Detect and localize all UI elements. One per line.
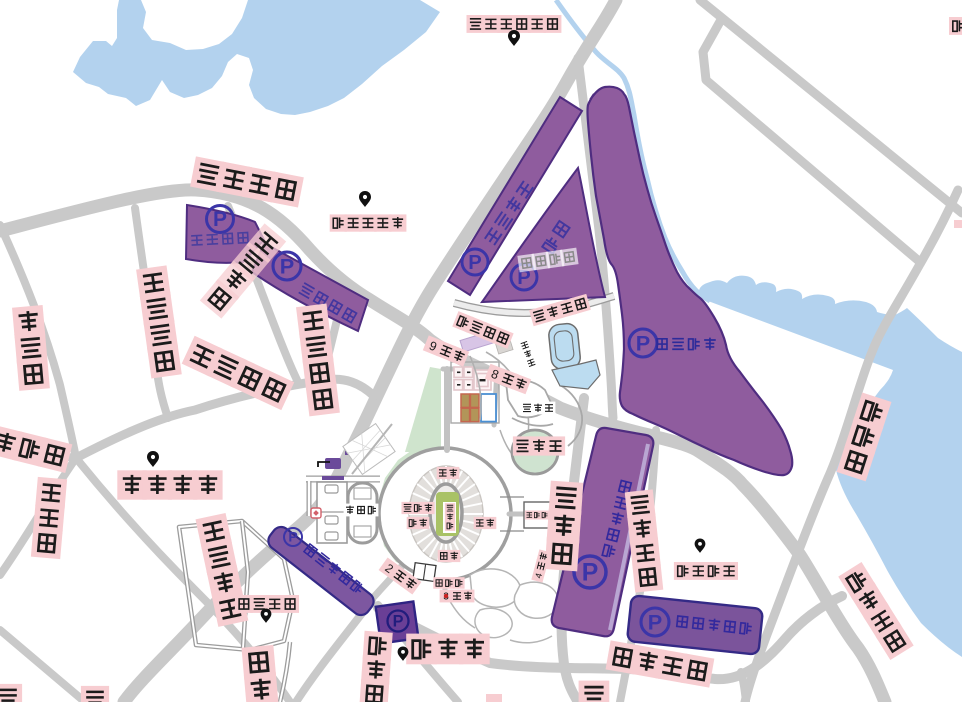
svg-text:P: P [582,559,599,586]
svg-text:P: P [468,252,481,274]
svg-text:P: P [636,330,650,355]
svg-text:P: P [280,253,294,278]
svg-text:P: P [213,208,227,231]
svg-text:P: P [288,529,297,545]
svg-text:P: P [393,613,404,631]
svg-text:P: P [648,609,662,634]
